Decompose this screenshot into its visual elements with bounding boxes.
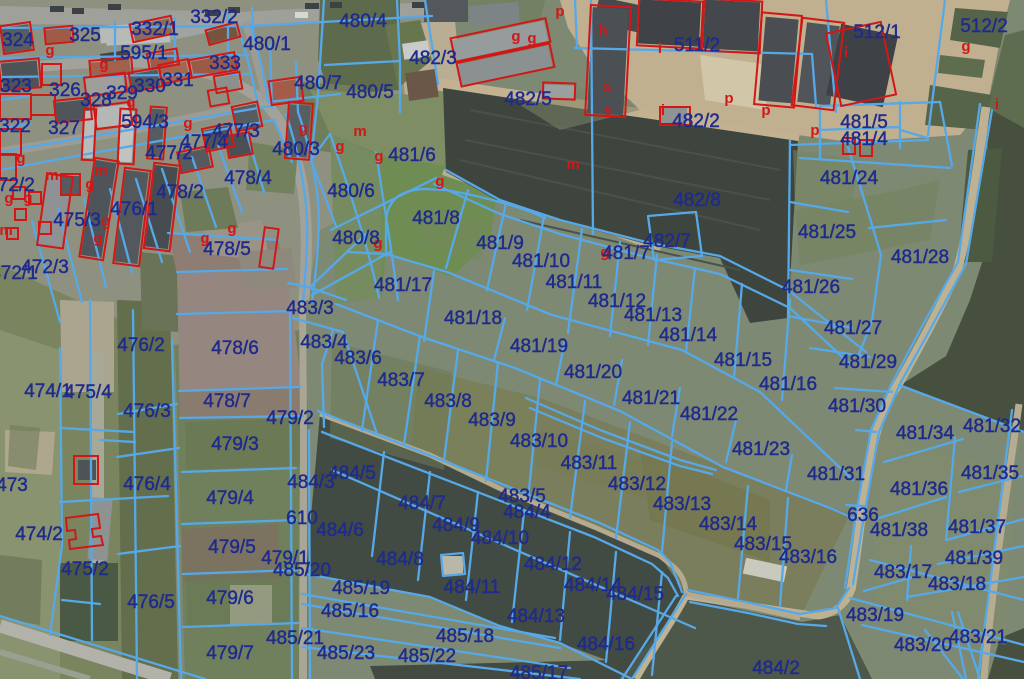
svg-text:484/4: 484/4	[503, 502, 551, 523]
svg-text:484/13: 484/13	[507, 606, 565, 627]
svg-text:481/10: 481/10	[512, 251, 570, 272]
svg-text:484/8: 484/8	[376, 549, 424, 570]
svg-text:472/2: 472/2	[0, 175, 35, 196]
svg-text:p: p	[724, 90, 733, 107]
svg-text:g: g	[45, 42, 54, 59]
svg-text:476/3: 476/3	[123, 401, 171, 422]
svg-text:485/22: 485/22	[398, 646, 456, 667]
svg-text:327: 327	[48, 118, 80, 139]
svg-text:595/1: 595/1	[120, 43, 168, 64]
svg-text:332/1: 332/1	[131, 19, 179, 40]
svg-text:483/13: 483/13	[653, 494, 711, 515]
svg-text:479/4: 479/4	[206, 488, 254, 509]
svg-text:480/3: 480/3	[272, 139, 320, 160]
svg-text:485/18: 485/18	[436, 626, 494, 647]
svg-text:477/2: 477/2	[145, 143, 193, 164]
svg-text:m: m	[45, 167, 58, 184]
svg-text:483/19: 483/19	[846, 605, 904, 626]
svg-text:330: 330	[134, 76, 166, 97]
svg-text:p: p	[810, 122, 819, 139]
svg-text:483/21: 483/21	[949, 627, 1007, 648]
svg-text:481/22: 481/22	[680, 404, 738, 425]
svg-text:481/29: 481/29	[839, 352, 897, 373]
svg-text:481/16: 481/16	[759, 374, 817, 395]
svg-text:475/3: 475/3	[53, 210, 101, 231]
svg-text:484/16: 484/16	[577, 634, 635, 655]
svg-text:322: 322	[0, 116, 31, 137]
svg-text:481/30: 481/30	[828, 396, 886, 417]
svg-text:478/2: 478/2	[156, 182, 204, 203]
svg-text:p: p	[761, 102, 770, 119]
svg-text:475/2: 475/2	[61, 559, 109, 580]
svg-text:610: 610	[286, 508, 318, 529]
svg-text:481/23: 481/23	[732, 439, 790, 460]
svg-text:473: 473	[0, 475, 28, 496]
svg-text:476/5: 476/5	[127, 592, 175, 613]
svg-text:483/6: 483/6	[334, 348, 382, 369]
svg-text:g: g	[85, 176, 94, 193]
svg-text:481/28: 481/28	[891, 247, 949, 268]
svg-text:484/5: 484/5	[328, 463, 376, 484]
svg-text:483/17: 483/17	[874, 562, 932, 583]
svg-text:483/7: 483/7	[377, 370, 425, 391]
svg-text:323: 323	[0, 76, 32, 97]
svg-text:481/8: 481/8	[412, 208, 460, 229]
svg-text:483/16: 483/16	[779, 547, 837, 568]
svg-text:481/36: 481/36	[890, 479, 948, 500]
svg-text:485/20: 485/20	[273, 560, 331, 581]
svg-text:479/3: 479/3	[211, 434, 259, 455]
svg-text:331: 331	[162, 70, 194, 91]
svg-text:480/1: 480/1	[243, 34, 291, 55]
svg-text:482/8: 482/8	[673, 190, 721, 211]
svg-text:485/19: 485/19	[332, 578, 390, 599]
svg-text:483/11: 483/11	[561, 453, 618, 474]
svg-text:481/4: 481/4	[840, 129, 888, 150]
svg-text:g: g	[435, 173, 444, 190]
svg-text:m: m	[566, 156, 579, 173]
svg-text:479/2: 479/2	[266, 408, 314, 429]
svg-text:g: g	[183, 115, 192, 132]
svg-text:484/7: 484/7	[398, 493, 446, 514]
svg-text:324: 324	[2, 30, 34, 51]
svg-text:478/4: 478/4	[224, 168, 272, 189]
svg-text:g: g	[527, 30, 536, 47]
svg-text:636: 636	[847, 505, 879, 526]
svg-text:482/3: 482/3	[409, 48, 457, 69]
svg-text:479/6: 479/6	[206, 588, 254, 609]
svg-text:481/31: 481/31	[807, 464, 865, 485]
svg-text:483/20: 483/20	[894, 635, 952, 656]
svg-text:481/37: 481/37	[948, 517, 1006, 538]
svg-text:333: 333	[209, 53, 241, 74]
svg-text:483/3: 483/3	[286, 298, 334, 319]
svg-text:g: g	[16, 150, 25, 167]
svg-text:485/16: 485/16	[321, 601, 379, 622]
svg-text:485/17: 485/17	[510, 663, 568, 679]
svg-text:481/17: 481/17	[374, 275, 432, 296]
svg-text:p: p	[555, 3, 564, 20]
svg-text:483/9: 483/9	[468, 410, 516, 431]
svg-text:480/7: 480/7	[294, 73, 342, 94]
svg-text:481/35: 481/35	[961, 463, 1019, 484]
svg-text:s: s	[604, 102, 612, 119]
svg-text:481/25: 481/25	[798, 222, 856, 243]
svg-text:480/4: 480/4	[339, 11, 387, 32]
svg-text:481/18: 481/18	[444, 308, 502, 329]
svg-text:m: m	[0, 222, 13, 239]
svg-text:g: g	[99, 56, 108, 73]
svg-text:481/6: 481/6	[388, 145, 436, 166]
svg-text:472/1: 472/1	[0, 263, 38, 284]
svg-text:481/32: 481/32	[963, 416, 1021, 437]
svg-text:475/4: 475/4	[64, 382, 112, 403]
svg-text:480/5: 480/5	[346, 82, 394, 103]
svg-text:i: i	[844, 44, 848, 61]
svg-text:g: g	[298, 120, 307, 137]
svg-text:329: 329	[106, 83, 138, 104]
svg-text:481/27: 481/27	[824, 318, 882, 339]
svg-text:479/5: 479/5	[208, 537, 256, 558]
svg-text:481/11: 481/11	[546, 272, 603, 293]
svg-text:485/23: 485/23	[317, 643, 375, 664]
svg-text:i: i	[658, 40, 662, 57]
svg-text:481/26: 481/26	[782, 277, 840, 298]
svg-text:485/21: 485/21	[266, 628, 324, 649]
svg-text:476/2: 476/2	[117, 335, 165, 356]
svg-text:326: 326	[49, 80, 81, 101]
svg-text:484/10: 484/10	[471, 528, 529, 549]
svg-text:483/10: 483/10	[510, 431, 568, 452]
svg-text:482/2: 482/2	[672, 111, 720, 132]
svg-text:325: 325	[69, 25, 101, 46]
svg-text:i: i	[661, 102, 665, 119]
svg-text:484/11: 484/11	[444, 577, 501, 598]
svg-text:g: g	[335, 138, 344, 155]
svg-text:m: m	[353, 123, 366, 140]
svg-text:g: g	[374, 148, 383, 165]
svg-text:481/39: 481/39	[945, 548, 1003, 569]
svg-text:481/24: 481/24	[820, 168, 879, 189]
svg-text:h: h	[598, 22, 607, 39]
svg-text:484/12: 484/12	[524, 554, 582, 575]
svg-text:480/8: 480/8	[332, 228, 380, 249]
svg-text:479/7: 479/7	[206, 643, 254, 664]
svg-text:484/2: 484/2	[752, 658, 800, 679]
svg-text:478/5: 478/5	[203, 239, 251, 260]
svg-text:474/2: 474/2	[15, 524, 63, 545]
svg-text:g: g	[227, 220, 236, 237]
svg-text:478/7: 478/7	[203, 391, 251, 412]
svg-text:476/1: 476/1	[110, 199, 158, 220]
svg-text:i: i	[995, 96, 999, 113]
svg-text:480/6: 480/6	[327, 181, 375, 202]
svg-text:g: g	[93, 230, 102, 247]
svg-text:481/15: 481/15	[714, 350, 772, 371]
svg-text:478/6: 478/6	[211, 338, 259, 359]
svg-text:511/2: 511/2	[674, 35, 720, 56]
svg-text:476/4: 476/4	[123, 474, 171, 495]
svg-text:482/7: 482/7	[643, 231, 691, 252]
svg-text:483/18: 483/18	[928, 574, 986, 595]
svg-text:332/2: 332/2	[190, 7, 238, 28]
svg-text:512/2: 512/2	[960, 16, 1008, 37]
svg-text:482/5: 482/5	[504, 89, 552, 110]
svg-text:m: m	[94, 162, 107, 179]
svg-text:s: s	[603, 79, 611, 96]
svg-text:481/13: 481/13	[624, 305, 682, 326]
svg-text:g: g	[511, 28, 520, 45]
svg-text:484/6: 484/6	[316, 520, 364, 541]
svg-text:481/20: 481/20	[564, 362, 622, 383]
svg-text:g: g	[101, 213, 110, 230]
svg-text:481/19: 481/19	[510, 336, 568, 357]
svg-text:483/14: 483/14	[699, 514, 758, 535]
svg-text:481/14: 481/14	[659, 325, 718, 346]
svg-text:512/1: 512/1	[853, 22, 901, 43]
svg-text:481/34: 481/34	[896, 423, 955, 444]
svg-text:481/21: 481/21	[622, 388, 680, 409]
svg-text:484/15: 484/15	[606, 584, 664, 605]
svg-text:g: g	[961, 38, 970, 55]
svg-text:483/8: 483/8	[424, 391, 472, 412]
svg-text:483/12: 483/12	[608, 474, 666, 495]
svg-text:594/3: 594/3	[121, 112, 169, 133]
